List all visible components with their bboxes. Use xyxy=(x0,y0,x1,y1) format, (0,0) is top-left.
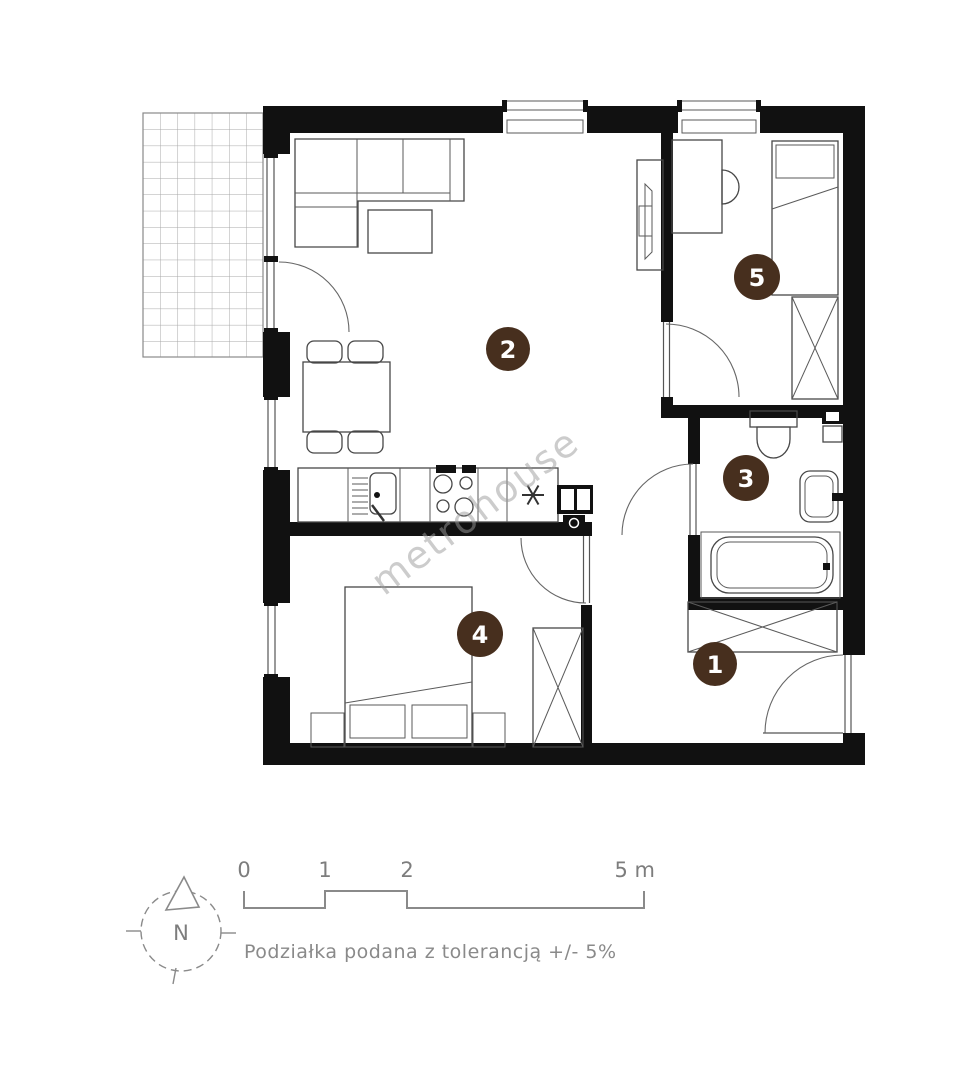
svg-text:4: 4 xyxy=(472,621,489,649)
door-bathroom xyxy=(622,464,696,535)
kitchen-sink xyxy=(352,473,396,521)
window-living-top xyxy=(502,100,588,133)
bathtub xyxy=(701,532,840,598)
door-entrance xyxy=(763,655,851,733)
balcony-terrace xyxy=(143,113,263,357)
desk xyxy=(672,140,739,233)
room-badge-2: 2 xyxy=(486,327,530,371)
room-badge-3: 3 xyxy=(723,455,769,501)
wardrobe-bedroom4 xyxy=(533,628,583,747)
room-badge-1: 1 xyxy=(693,642,737,686)
washing-machine xyxy=(822,409,843,442)
double-bed xyxy=(345,587,472,747)
dining-set xyxy=(303,341,390,453)
floorplan-image: 1 2 3 4 5 metrohouse N 0 1 2 5 m Podział… xyxy=(0,0,971,1080)
window-room5-top xyxy=(677,100,761,133)
floor-plan-svg: 1 2 3 4 5 metrohouse N 0 1 2 5 m Podział… xyxy=(0,0,971,1080)
nightstand-right xyxy=(473,713,505,747)
toilet xyxy=(750,411,797,458)
bathroom-sink xyxy=(800,471,844,522)
scale-bar: 0 1 2 5 m xyxy=(237,858,655,908)
wardrobe-room5 xyxy=(792,297,838,399)
svg-text:2: 2 xyxy=(500,336,517,364)
room-badge-4: 4 xyxy=(457,611,503,657)
svg-text:1: 1 xyxy=(707,651,724,679)
watermark: metrohouse xyxy=(363,419,587,603)
balcony-door xyxy=(264,152,349,334)
tolerance-note: Podziałka podana z tolerancją +/- 5% xyxy=(244,941,617,963)
door-bedroom4 xyxy=(521,536,590,603)
corner-sofa xyxy=(295,139,464,247)
svg-text:0: 0 xyxy=(237,858,250,882)
svg-text:5 m: 5 m xyxy=(615,858,656,882)
coffee-table xyxy=(368,210,432,253)
window-bedroom4 xyxy=(264,601,278,679)
north-compass: N xyxy=(126,877,236,984)
door-room5 xyxy=(664,322,740,397)
tv-cabinet xyxy=(637,160,663,270)
svg-text:N: N xyxy=(173,921,189,945)
svg-text:1: 1 xyxy=(318,858,331,882)
svg-text:5: 5 xyxy=(749,264,766,292)
window-dining xyxy=(264,395,278,472)
svg-text:2: 2 xyxy=(400,858,413,882)
svg-text:3: 3 xyxy=(738,465,755,493)
nightstand-left xyxy=(311,713,344,747)
single-bed xyxy=(772,141,838,295)
room-badge-5: 5 xyxy=(734,254,780,300)
